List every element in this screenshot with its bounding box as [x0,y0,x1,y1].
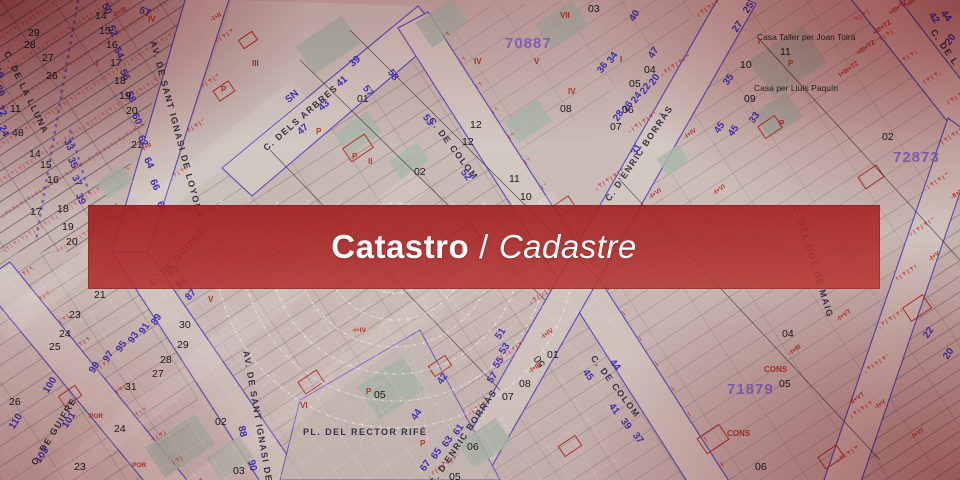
building-annotation-label: VI [300,402,308,410]
building-annotation-label: CONS [764,366,787,374]
title-banner: Catastro/Cadastre [88,205,880,289]
building-annotation-label: IV [148,16,156,24]
building-annotation-label: II [368,158,372,166]
building-annotation-label: P [788,60,793,68]
building-annotation-label: -II+V [950,188,960,201]
building-annotation-label: POR [132,463,146,470]
building-annotation-label: V [534,58,539,66]
building-annotation-label: -I+IV [352,328,366,335]
building-annotation-label: P [316,128,321,136]
building-annotation-label: I [96,60,98,68]
building-annotation-label: I [758,38,760,46]
building-annotation-label: +III+TZ [872,20,893,37]
building-annotation-label: -II+VT [848,392,866,408]
banner-title-secondary: Cadastre [499,228,637,265]
building-annotation-label: -I+II [210,12,223,23]
building-annotation-label: +II+TZ [905,0,924,9]
building-annotation-label: -I+IV [683,128,698,141]
building-annotation-label: IV [568,88,576,96]
building-annotation-label: I+III+TZ [838,61,860,79]
building-annotation-label: III [252,60,259,68]
building-annotation-label: P [779,120,784,128]
banner-title-primary: Catastro [331,228,469,265]
building-annotation-label: -I+II [140,142,153,153]
building-annotation-label: +III+TZ [856,40,877,57]
building-annotation-label: IV [474,58,482,66]
banner-title-separator: / [479,228,489,265]
building-annotation-label: -I+VI [648,188,663,201]
building-annotation-label: -I+VI [712,184,727,197]
building-annotation-label: -I+V [928,251,942,263]
building-annotation-label: CONS [727,430,750,438]
building-annotation-label: V [208,296,213,304]
building-annotation-label: VII [560,12,570,20]
building-annotation-label: POR [89,414,103,421]
building-annotation-label: -II+III [112,7,128,20]
building-annotation-label: P [221,86,226,94]
building-annotation-label: -I+III [788,344,803,357]
building-annotation-label: -I+V [874,399,888,411]
building-annotation-label: -I+IV [540,328,555,341]
building-annotation-label: -I+VT [836,309,853,324]
cadastre-hero: C. DE LA LLUNAAV. DE SANT IGNASI DE LOYO… [0,0,960,480]
building-annotation-label: -I+VI [910,428,925,441]
building-annotation-label: P [366,388,371,396]
banner-title: Catastro/Cadastre [331,228,636,266]
building-annotation-label: -I+III [528,362,543,375]
building-annotation-label: I [620,56,622,64]
building-annotation-label: P [420,440,425,448]
building-annotation-label: P [352,153,357,161]
